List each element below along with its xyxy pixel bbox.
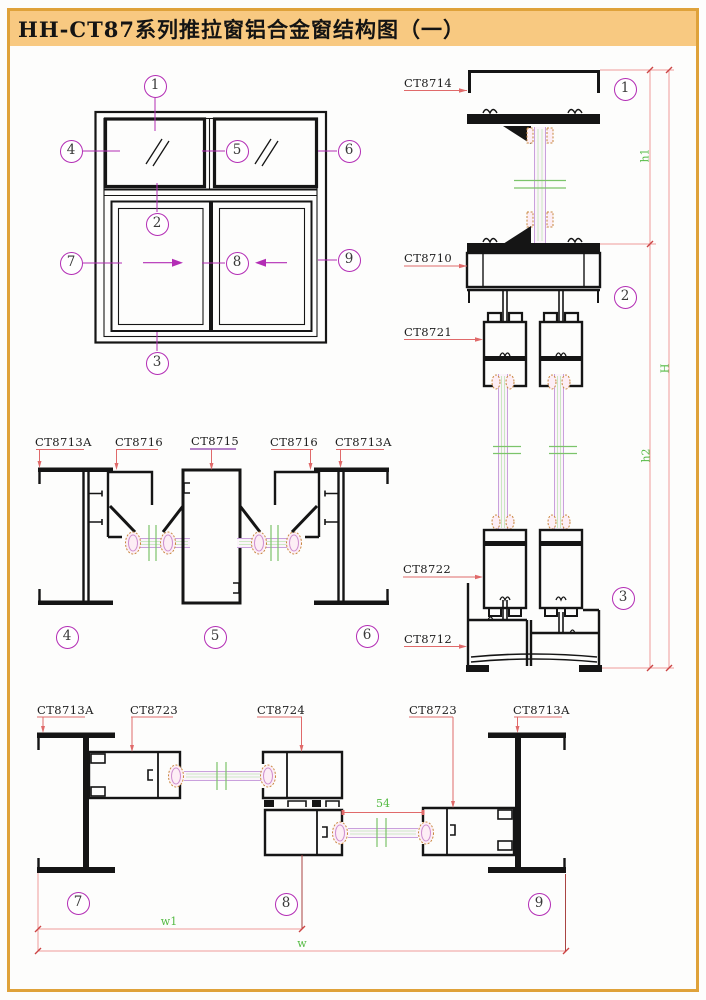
profile-ct8716-left: [108, 472, 152, 537]
profile-ct8714: [467, 72, 600, 145]
profile-ct8710: [467, 226, 600, 322]
profile-label-ct8713a-bot-left: CT8713A: [37, 704, 94, 717]
profile-label-ct8723-right: CT8723: [409, 704, 457, 717]
dim-label-H: H: [659, 358, 672, 380]
dim-label-h2: h2: [640, 445, 653, 467]
leader-lines: [36, 449, 384, 471]
callout-hsec-6: 6: [356, 625, 379, 648]
callout-elev-1: 1: [144, 75, 167, 98]
profile-ct8713a-right: [314, 468, 389, 606]
profile-label-ct8716-right: CT8716: [270, 436, 318, 449]
callout-bsec-7: 7: [67, 892, 90, 915]
callout-bsec-8: 8: [275, 893, 298, 916]
elevation-view: [83, 98, 337, 351]
dim-label-w1: w1: [157, 915, 181, 928]
callout-vsec-1: 1: [614, 78, 637, 101]
fixed-glass-unit: [514, 127, 566, 243]
callout-elev-7: 7: [60, 252, 83, 275]
callout-elev-4: 4: [60, 140, 83, 163]
profile-ct8713a-left: [38, 468, 113, 606]
profile-label-ct8723-left: CT8723: [130, 704, 178, 717]
dim-label-w: w: [294, 937, 310, 950]
callout-elev-5: 5: [226, 140, 249, 163]
profile-label-ct8713a-mid-left: CT8713A: [35, 436, 92, 449]
profile-label-ct8714: CT8714: [404, 77, 452, 90]
bottom-horizontal-section: [35, 717, 569, 954]
profile-ct8716-right: [275, 472, 319, 537]
profile-label-ct8716-left: CT8716: [115, 436, 163, 449]
glazing-bead: [503, 226, 531, 244]
profile-label-ct8710: CT8710: [404, 252, 452, 265]
glass-hatch: [146, 139, 278, 166]
callout-vsec-2: 2: [614, 286, 637, 309]
glass-run-upper: [169, 762, 276, 790]
profile-ct8724: [263, 752, 342, 855]
vertical-section: [403, 67, 674, 672]
profile-label-ct8713a-mid-right: CT8713A: [335, 436, 392, 449]
profile-label-ct8713a-bot-right: CT8713A: [513, 704, 570, 717]
profile-label-ct8715: CT8715: [191, 435, 239, 448]
callout-elev-2: 2: [146, 213, 169, 236]
callout-elev-3: 3: [146, 352, 169, 375]
dim-label-54: 54: [371, 797, 395, 810]
sash-glass-units: [492, 374, 577, 530]
profile-label-ct8722: CT8722: [403, 563, 451, 576]
dim-label-h1: h1: [639, 145, 652, 167]
callout-elev-9: 9: [338, 249, 361, 272]
profile-ct8722: [484, 530, 582, 616]
callout-elev-8: 8: [226, 252, 249, 275]
top-horizontal-section: [36, 449, 389, 606]
profile-label-ct8712: CT8712: [404, 633, 452, 646]
callout-hsec-4: 4: [56, 626, 79, 649]
profile-ct8723-left: [89, 752, 180, 798]
profile-label-ct8721: CT8721: [404, 326, 452, 339]
callout-vsec-3: 3: [612, 587, 635, 610]
callout-bsec-9: 9: [528, 893, 551, 916]
profile-label-ct8724: CT8724: [257, 704, 305, 717]
callout-elev-6: 6: [338, 140, 361, 163]
profile-ct8723-right: [423, 808, 514, 855]
width-dimension-lines: [35, 810, 569, 954]
glass-run-lower: [333, 818, 434, 847]
drawing-sheet: HH-CT87系列推拉窗铝合金窗结构图（一）: [0, 0, 706, 1000]
leader-lines: [37, 717, 562, 808]
profile-ct8713a-right: [488, 733, 566, 874]
profile-ct8715: [163, 470, 260, 603]
callout-hsec-5: 5: [204, 626, 227, 649]
